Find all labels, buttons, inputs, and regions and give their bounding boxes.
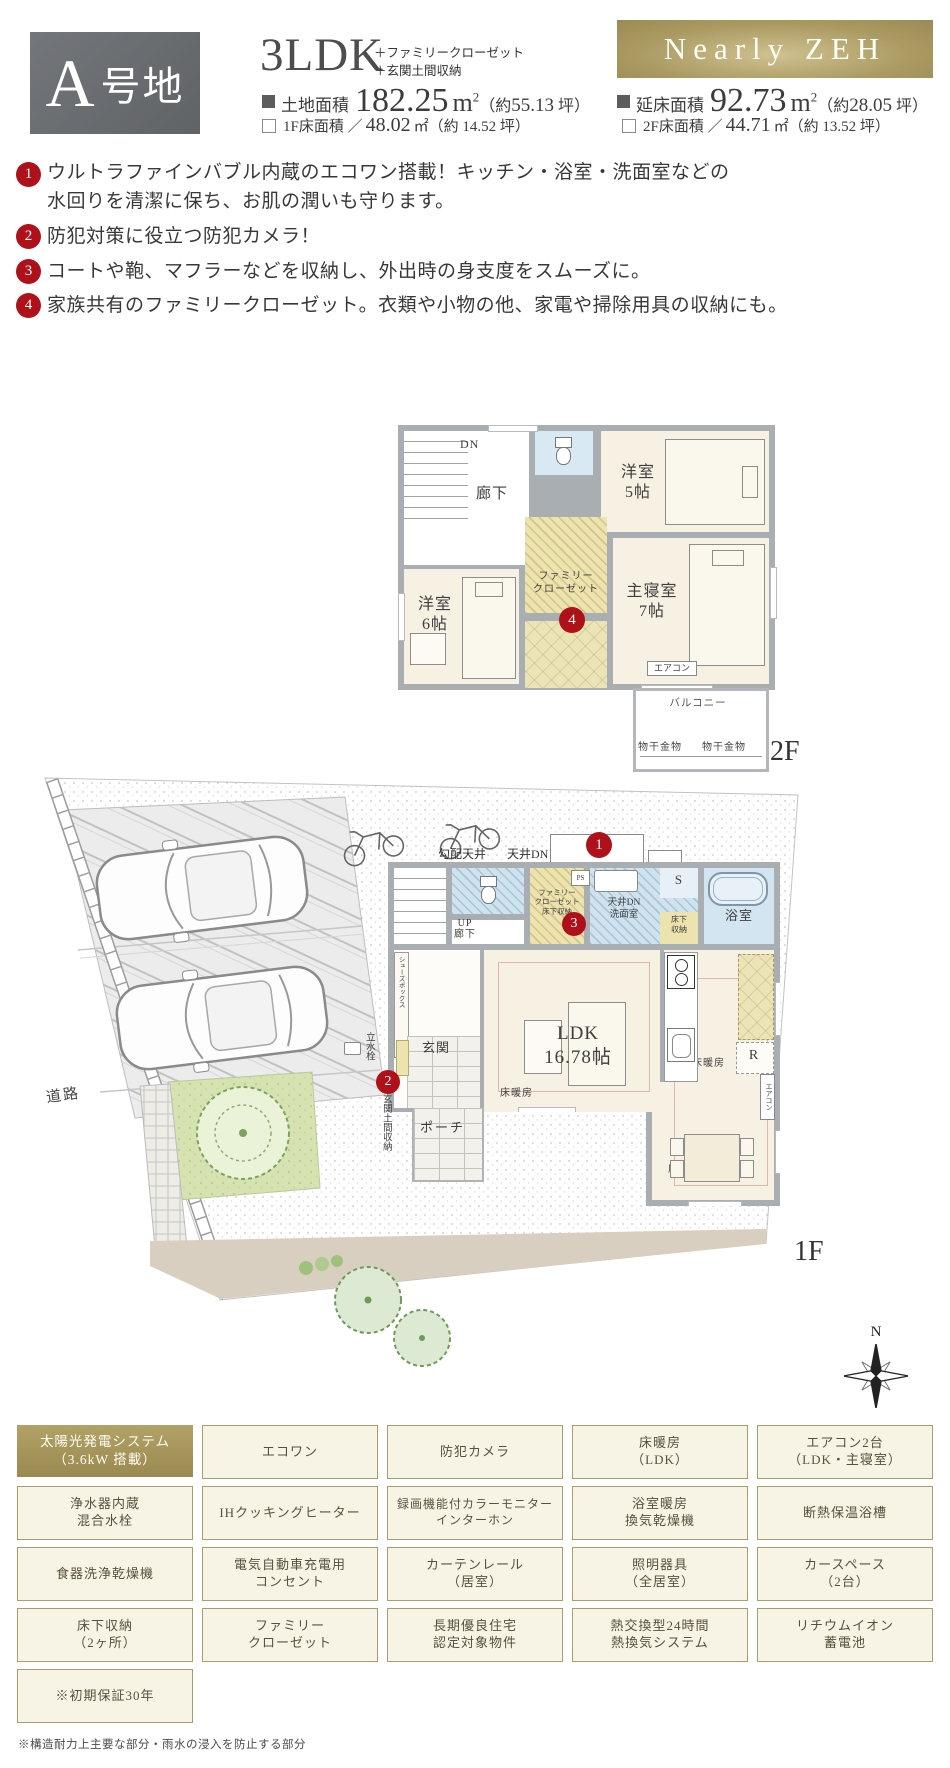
tree-icon	[335, 1267, 401, 1333]
chair-icon	[670, 1138, 684, 1156]
bed-icon	[462, 577, 516, 679]
stove-icon	[667, 955, 695, 989]
equipment-cell: 防犯カメラ	[387, 1425, 563, 1479]
floor2-label: 2F床面積 ／	[643, 115, 723, 136]
feature-1-text: ウルトラファインバブル内蔵のエコワン搭載！キッチン・浴室・洗面室などの 水回りを…	[47, 158, 927, 216]
floor1-tsubo: （約 14.52 坪）	[429, 115, 530, 136]
feature-2-number: 2	[16, 224, 41, 249]
equipment-cell: IHクッキングヒーター	[202, 1486, 378, 1540]
entrance-label: 玄関	[422, 1040, 450, 1056]
window	[488, 425, 538, 432]
hallway-label: 廊下	[476, 485, 508, 504]
stairs-2f	[404, 431, 468, 523]
bedroom-6jo: 洋室 6帖	[404, 569, 519, 684]
master-bedroom: 主寝室 7帖 エアコン	[613, 538, 769, 684]
equipment-cell: 食器洗浄乾燥機	[17, 1547, 193, 1601]
bottom-footnote: ※構造耐力上主要な部分・雨水の浸入を防止する部分	[18, 1736, 306, 1752]
equipment-cell: ファミリー クローゼット	[202, 1608, 378, 1662]
toilet-bowl-icon	[556, 447, 571, 465]
equipment-cell: 床暖房 （LDK）	[572, 1425, 748, 1479]
equipment-cell: エアコン2台 （LDK・主寝室）	[757, 1425, 933, 1479]
family-closet-2f	[525, 517, 607, 613]
aircon-label-1f: エアコン	[760, 1074, 775, 1120]
outline-square-icon	[262, 119, 276, 133]
ldk-label: LDK 16.78帖	[536, 1022, 620, 1070]
total-area-label: 延床面積	[636, 91, 704, 116]
dining-table-icon	[684, 1134, 740, 1182]
feature-1-number: 1	[16, 162, 41, 187]
layout-title: 3LDK	[260, 28, 384, 82]
bathroom	[704, 868, 774, 944]
tree-icon	[197, 1087, 289, 1179]
equipment-cell: 浴室暖房 換気乾燥機	[572, 1486, 748, 1540]
floor2-value: 44.71	[726, 114, 771, 137]
fridge-label: R	[736, 1047, 772, 1065]
equipment-cell: カーテンレール （居室）	[387, 1547, 563, 1601]
equipment-cell: 録画機能付カラーモニター インターホン	[387, 1486, 563, 1540]
floorplan-2f: DN 廊下 洋室 5帖 洋室 6帖 ファミリー クローゼット 4	[398, 425, 775, 690]
doma-storage	[396, 1040, 409, 1076]
feature-4-number: 4	[16, 293, 41, 318]
floor1-area-row: 1F床面積 ／ 48.02 ㎡ （約 14.52 坪）	[262, 114, 530, 137]
feature-4-plan-badge: 4	[559, 607, 585, 633]
feature-2-text: 防犯対策に役立つ防犯カメラ！	[47, 222, 927, 251]
filled-square-icon	[262, 95, 275, 108]
equipment-cell-warranty: ※初期保証30年	[17, 1669, 193, 1723]
feature-1-plan-badge: 1	[586, 832, 612, 858]
layout-plus-2: ＋玄関土間収納	[374, 60, 462, 79]
faucet-icon	[344, 1042, 361, 1055]
master-bedroom-label: 主寝室 7帖	[617, 582, 687, 622]
aircon-label-2f: エアコン	[647, 661, 697, 676]
toilet-room-2f	[535, 431, 593, 475]
slope-ceiling-label: 勾配天井	[438, 845, 486, 862]
floor-heating-label: 床暖房	[500, 1088, 533, 1101]
bathtub-icon	[708, 872, 768, 906]
floor2-tsubo: （約 13.52 坪）	[789, 115, 890, 136]
bed-icon	[689, 544, 765, 666]
tree-icon	[394, 1310, 450, 1366]
feature-4-text: 家族共有のファミリークローゼット。衣類や小物の他、家電や掃除用具の収納にも。	[47, 291, 947, 320]
layout-plus-1: ＋ファミリークローゼット	[374, 42, 524, 61]
equipment-cell: 長期優良住宅 認定対象物件	[387, 1608, 563, 1662]
bedroom-5jo: 洋室 5帖	[601, 431, 769, 532]
stairs-1f	[394, 868, 446, 944]
up-hallway-label: UP 廊下	[454, 918, 476, 940]
storage-s-label: S	[660, 872, 698, 888]
plot-letter: A	[45, 49, 94, 117]
pillow-icon	[712, 550, 744, 566]
bathroom-label: 浴室	[704, 908, 774, 924]
equipment-cell: エコワン	[202, 1425, 378, 1479]
feature-3-text: コートや鞄、マフラーなどを収納し、外出時の身支度をスムーズに。	[47, 257, 927, 286]
bedroom-6jo-label: 洋室 6帖	[412, 595, 458, 635]
floor-1f-label: 1F	[794, 1236, 824, 1268]
family-closet-label: ファミリー クローゼット	[525, 571, 607, 596]
bedroom-5jo-label: 洋室 5帖	[609, 463, 667, 503]
feature-3-number: 3	[16, 259, 41, 284]
chair-icon	[670, 1160, 684, 1178]
pillow-icon	[475, 582, 503, 597]
floor1-label: 1F床面積 ／	[283, 115, 363, 136]
equipment-cell: 電気自動車充電用 コンセント	[202, 1547, 378, 1601]
plot-name-badge: A 号地	[30, 32, 200, 134]
flyer-page: A 号地 3LDK ＋ファミリークローゼット ＋玄関土間収納 Nearly ZE…	[0, 0, 950, 1768]
toilet-room-1f	[452, 868, 524, 914]
feature-3-plan-badge: 3	[562, 912, 586, 936]
desk-icon	[410, 633, 446, 665]
balcony-label: バルコニー	[636, 697, 760, 710]
sink-icon	[667, 1028, 695, 1062]
north-label: N	[856, 1324, 896, 1341]
equipment-cell: 熱交換型24時間 熱換気システム	[572, 1608, 748, 1662]
filled-square-icon	[617, 95, 630, 108]
stairs-dn-label: DN	[460, 437, 479, 452]
equipment-cell: 照明器具 （全居室）	[572, 1547, 748, 1601]
total-area-value: 92.73	[710, 84, 787, 118]
land-area-row: 土地面積 182.25 m2 （約55.13 坪）	[262, 84, 590, 118]
window	[770, 567, 777, 619]
chair-icon	[740, 1160, 754, 1178]
floor2-unit: ㎡	[774, 115, 789, 136]
floor1-unit: ㎡	[414, 115, 429, 136]
land-area-label: 土地面積	[281, 91, 349, 116]
underfloor-storage-label: 床下 収納	[660, 915, 698, 935]
toilet-bowl-icon	[481, 886, 496, 904]
compass-icon	[844, 1344, 908, 1408]
porch-label: ポーチ	[420, 1120, 465, 1136]
pantry-closet	[738, 954, 774, 1040]
vanity-icon	[594, 870, 638, 892]
window	[398, 593, 405, 641]
equipment-grid: 太陽光発電システム （3.6kW 搭載） エコワン 防犯カメラ 床暖房 （LDK…	[17, 1425, 933, 1723]
chair-icon	[740, 1138, 754, 1156]
ceiling-dn-label: 天井DN	[507, 845, 548, 862]
total-floor-area-row: 延床面積 92.73 m2 （約28.05 坪）	[617, 84, 928, 118]
equipment-cell: 浄水器内蔵 混合水栓	[17, 1486, 193, 1540]
washroom-label: 天井DN 洗面室	[592, 898, 656, 922]
bed-icon	[665, 439, 765, 525]
pillow-icon	[742, 466, 758, 498]
equipment-cell: 床下収納 （2ヶ所）	[17, 1608, 193, 1662]
ps-label: PS	[571, 870, 590, 886]
land-area-value: 182.25	[355, 84, 449, 118]
equipment-cell: 断熱保温浴槽	[757, 1486, 933, 1540]
equipment-cell: リチウムイオン 蓄電池	[757, 1608, 933, 1662]
equipment-cell: カースペース （2台）	[757, 1547, 933, 1601]
nearly-zeh-badge: Nearly ZEH	[617, 20, 933, 78]
outline-square-icon	[622, 119, 636, 133]
shoes-box-label: シューズボックス	[396, 956, 404, 1008]
doma-label: 玄関土間収納	[379, 1094, 391, 1151]
faucet-label: 立水栓	[362, 1032, 374, 1061]
floor1-value: 48.02	[366, 114, 411, 137]
floor2-area-row: 2F床面積 ／ 44.71 ㎡ （約 13.52 坪）	[622, 114, 890, 137]
plot-suffix: 号地	[101, 54, 185, 112]
equipment-cell-solar: 太陽光発電システム （3.6kW 搭載）	[17, 1425, 193, 1477]
feature-2-plan-badge: 2	[376, 1070, 400, 1094]
